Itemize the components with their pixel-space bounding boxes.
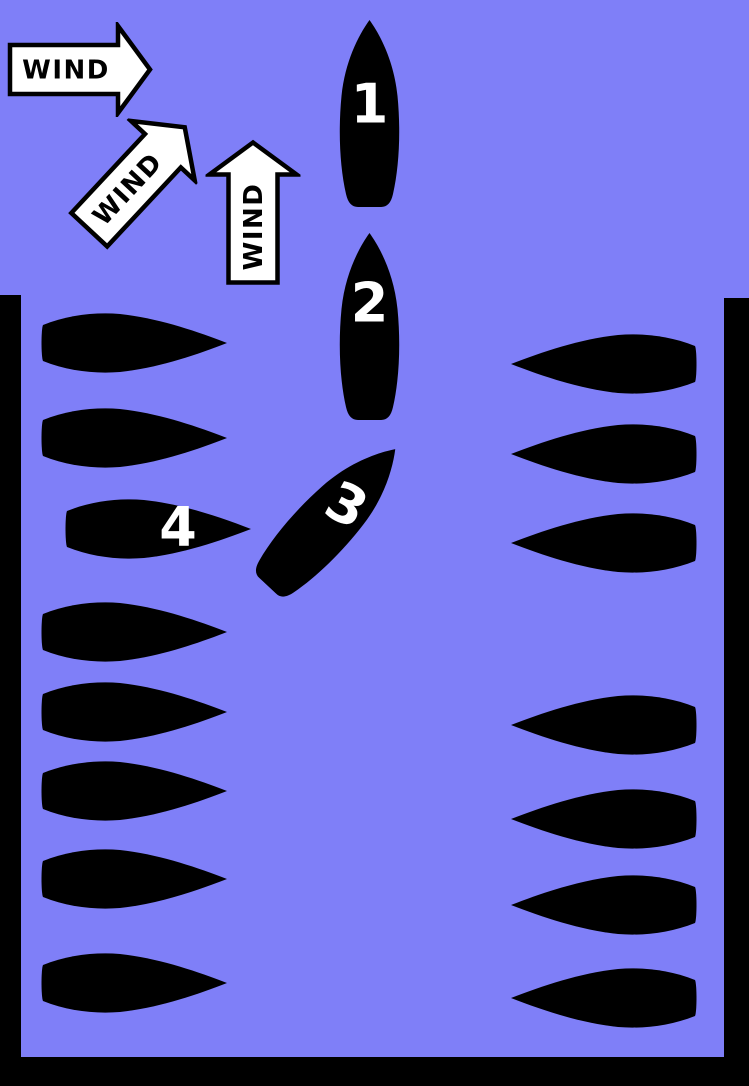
boat-hull — [511, 875, 697, 934]
boat-hull — [511, 968, 697, 1027]
wind-arrow-east: WIND — [6, 22, 154, 117]
boat-hull — [42, 602, 228, 661]
docked-boat-right-3 — [511, 511, 698, 575]
boat-2: 2 — [336, 233, 403, 420]
docked-boat-right-2 — [511, 422, 698, 486]
docked-boat-left-6 — [40, 847, 227, 911]
boat-1: 1 — [336, 20, 403, 207]
left-quay-wall — [0, 295, 21, 1086]
boat-number: 2 — [351, 272, 389, 335]
docked-boat-right-6 — [511, 873, 698, 937]
wind-arrow-northeast: WIND — [52, 92, 222, 265]
docked-boat-right-4 — [511, 693, 698, 757]
docked-boat-right-5 — [511, 787, 698, 851]
boat-hull — [42, 682, 228, 741]
boat-4: 4 — [64, 497, 251, 561]
right-quay-wall — [724, 298, 749, 1086]
docked-boat-right-1 — [511, 332, 698, 396]
bottom-quay-wall — [0, 1057, 749, 1086]
boat-hull — [511, 513, 697, 572]
docked-boat-left-7 — [40, 951, 227, 1015]
boat-hull — [511, 695, 697, 754]
docked-boat-left-3 — [40, 600, 227, 664]
docked-boat-left-4 — [40, 680, 227, 744]
wind-arrow-north: WIND — [206, 139, 301, 287]
boat-number: 1 — [351, 73, 389, 136]
harbor-diagram: WIND WIND WIND 1 2 3 4 — [0, 0, 749, 1086]
docked-boat-left-1 — [40, 311, 227, 375]
docked-boat-right-7 — [511, 966, 698, 1030]
boat-hull — [42, 313, 228, 372]
wind-arrow-label: WIND — [239, 183, 269, 271]
boat-hull — [511, 789, 697, 848]
boat-hull — [42, 761, 228, 820]
boat-hull — [511, 334, 697, 393]
wind-arrow-label: WIND — [22, 56, 110, 86]
boat-hull — [42, 849, 228, 908]
boat-number: 4 — [159, 497, 197, 559]
docked-boat-left-5 — [40, 759, 227, 823]
docked-boat-left-2 — [40, 406, 227, 470]
boat-3: 3 — [243, 426, 420, 608]
boat-hull — [511, 424, 697, 483]
boat-hull — [42, 408, 228, 467]
boat-hull — [42, 953, 228, 1012]
